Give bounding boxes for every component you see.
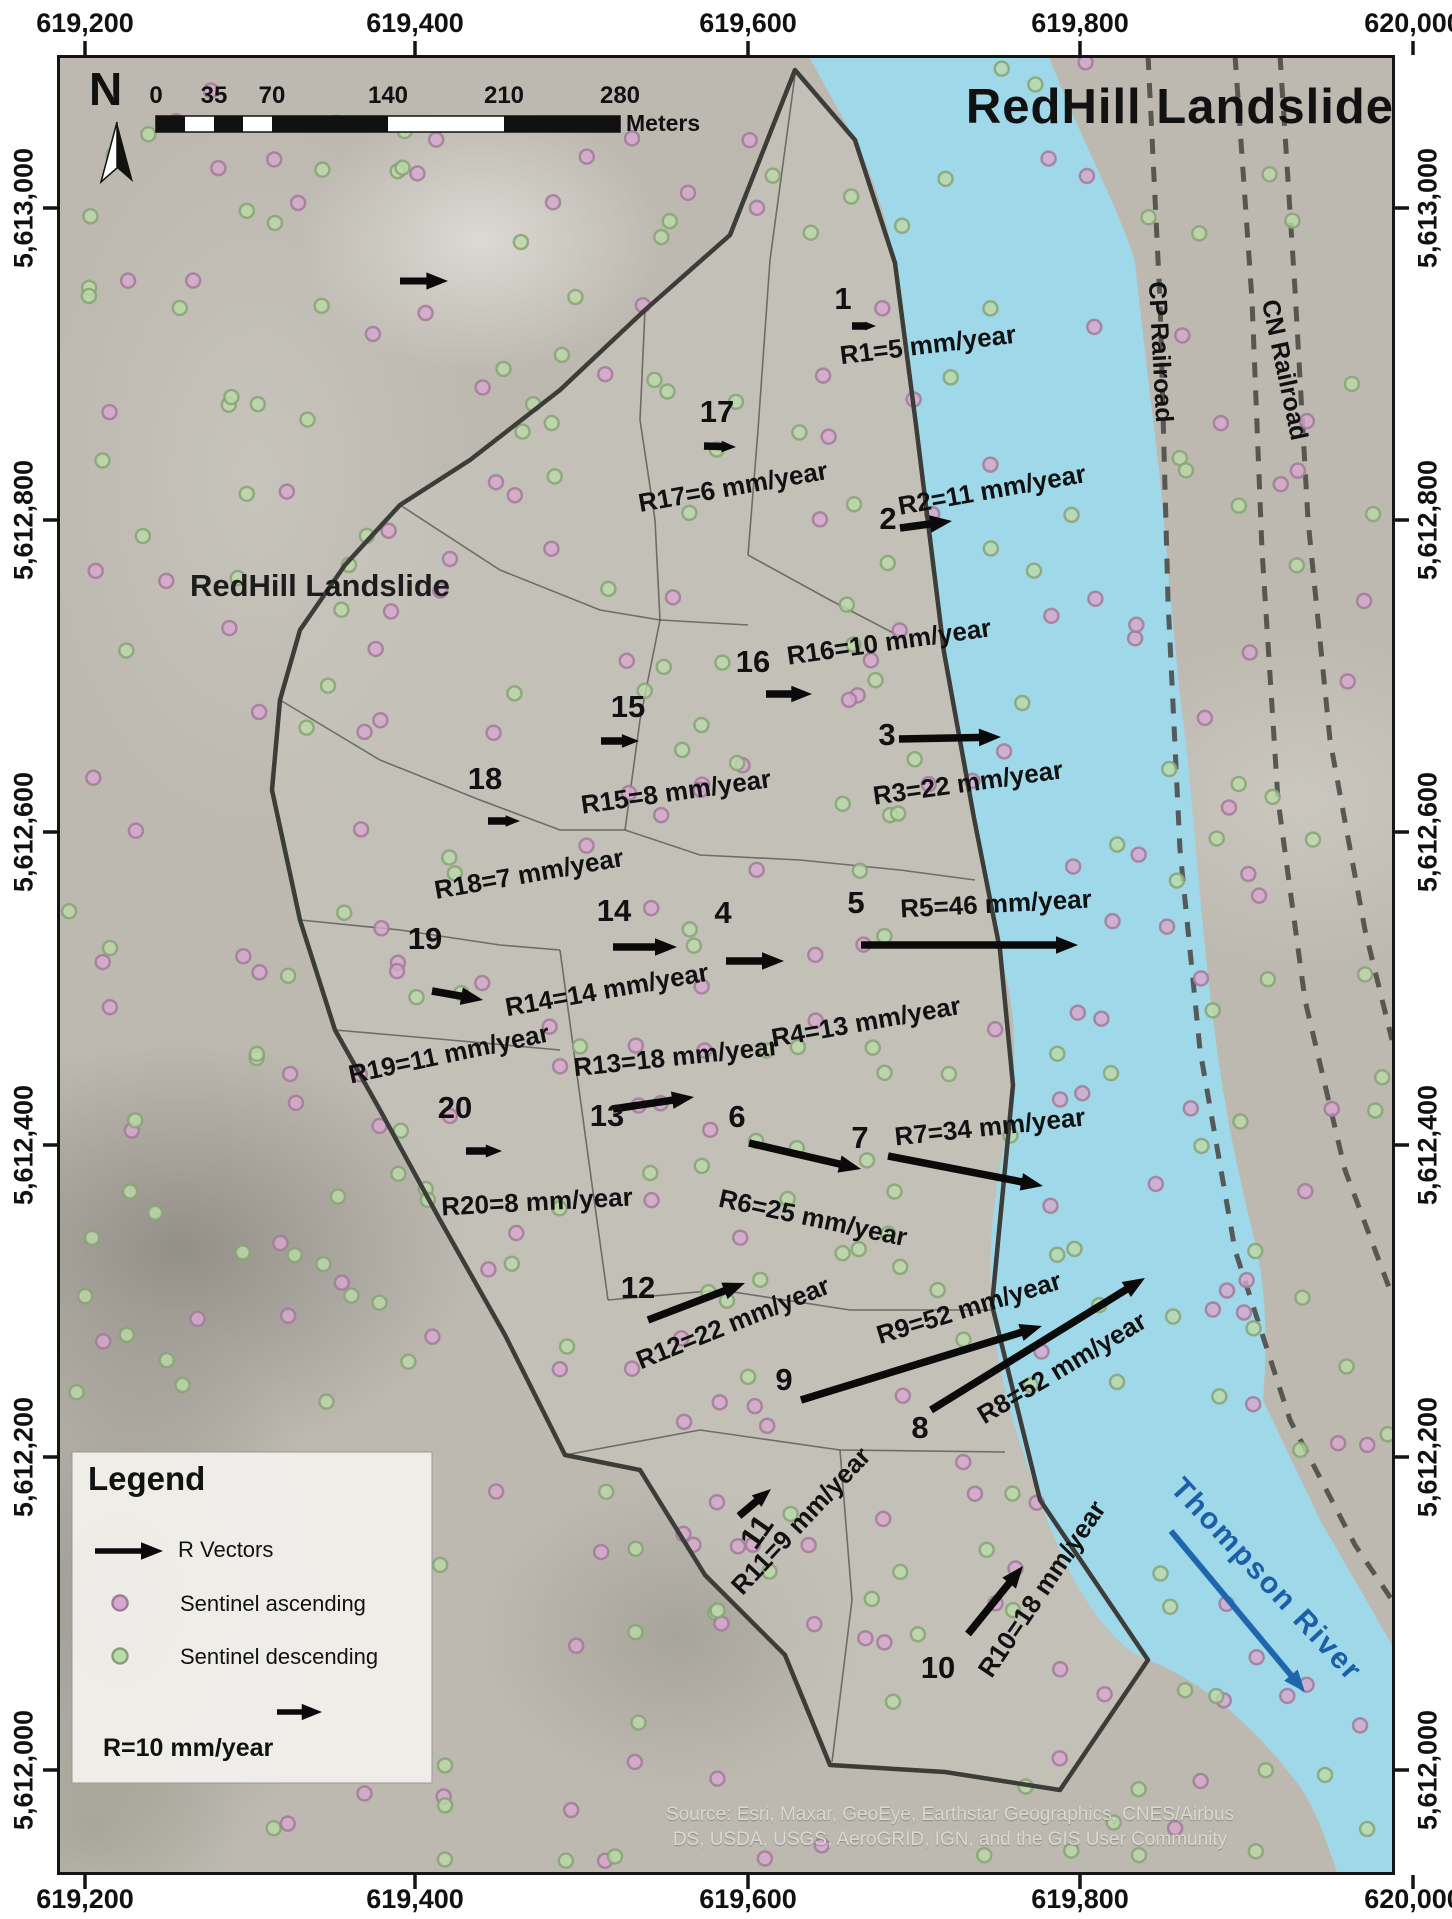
zone-number-9: 9 [775, 1362, 792, 1398]
sentinel-ascending-point [1184, 1101, 1198, 1115]
sentinel-ascending-point [509, 1226, 523, 1240]
sentinel-ascending-point [1160, 920, 1174, 934]
sentinel-ascending-point [644, 901, 658, 915]
sentinel-descending-point [1027, 564, 1041, 578]
y-axis-label-left: 5,612,600 [9, 772, 40, 892]
y-axis-label-right: 5,612,800 [1413, 460, 1444, 580]
zone-number-1: 1 [834, 281, 851, 317]
sentinel-descending-point [753, 1273, 767, 1287]
sentinel-ascending-point [1214, 416, 1228, 430]
sentinel-descending-point [881, 556, 895, 570]
sentinel-ascending-point [875, 301, 889, 315]
sentinel-ascending-point [89, 564, 103, 578]
sentinel-ascending-point [121, 274, 135, 288]
y-axis-label-left: 5,612,400 [9, 1085, 40, 1205]
zone-number-13: 13 [590, 1098, 624, 1134]
sentinel-descending-point [847, 497, 861, 511]
sentinel-descending-point [321, 679, 335, 693]
sentinel-descending-point [683, 922, 697, 936]
sentinel-descending-point [1154, 1566, 1168, 1580]
sentinel-ascending-point [283, 1067, 297, 1081]
x-axis-label-bottom: 619,400 [366, 1884, 464, 1915]
sentinel-ascending-point [620, 654, 634, 668]
sentinel-descending-point [555, 348, 569, 362]
scalebar-tick-label: 210 [484, 82, 524, 110]
sentinel-descending-point [628, 1625, 642, 1639]
sentinel-ascending-point [191, 1312, 205, 1326]
sentinel-descending-point [931, 1283, 945, 1297]
sentinel-ascending-point [159, 574, 173, 588]
sentinel-descending-point [895, 219, 909, 233]
sentinel-descending-point [1358, 967, 1372, 981]
x-axis-label-bottom: 619,600 [699, 1884, 797, 1915]
sentinel-ascending-point [858, 1631, 872, 1645]
sentinel-descending-point [1005, 1487, 1019, 1501]
sentinel-descending-point [1192, 226, 1206, 240]
sentinel-descending-point [675, 743, 689, 757]
sentinel-ascending-point [475, 976, 489, 990]
sentinel-ascending-point [808, 948, 822, 962]
sentinel-descending-point [944, 370, 958, 384]
scalebar-unit: Meters [626, 110, 700, 137]
sentinel-descending-point [957, 1333, 971, 1347]
sentinel-descending-point [836, 797, 850, 811]
sentinel-descending-point [1266, 790, 1280, 804]
sentinel-descending-point [1261, 972, 1275, 986]
sentinel-descending-point [250, 1047, 264, 1061]
sentinel-descending-point [123, 1185, 137, 1199]
map-figure: RedHill Landslide RedHill Landslide N Me… [0, 0, 1452, 1919]
sentinel-ascending-point [896, 1389, 910, 1403]
sentinel-ascending-point [1042, 152, 1056, 166]
sentinel-descending-point [983, 301, 997, 315]
sentinel-ascending-point [358, 725, 372, 739]
sentinel-ascending-point [429, 133, 443, 147]
sentinel-descending-point [1015, 696, 1029, 710]
zone-number-19: 19 [408, 921, 442, 957]
sentinel-ascending-point [703, 1123, 717, 1137]
sentinel-descending-point [804, 226, 818, 240]
sentinel-ascending-point [677, 1415, 691, 1429]
sentinel-descending-point [128, 1113, 142, 1127]
y-axis-label-left: 5,613,000 [9, 148, 40, 268]
sentinel-ascending-point [222, 621, 236, 635]
sentinel-descending-point [741, 1370, 755, 1384]
sentinel-descending-point [632, 1716, 646, 1730]
sentinel-ascending-point [508, 488, 522, 502]
sentinel-ascending-point [546, 195, 560, 209]
sentinel-ascending-point [1237, 1305, 1251, 1319]
x-axis-label-top: 619,600 [699, 8, 797, 39]
sentinel-ascending-point [369, 642, 383, 656]
sentinel-ascending-point [419, 306, 433, 320]
sentinel-ascending-point [96, 1334, 110, 1348]
sentinel-ascending-point [822, 430, 836, 444]
x-axis-label-top: 619,200 [36, 8, 134, 39]
sentinel-descending-point [1195, 1139, 1209, 1153]
sentinel-descending-point [62, 904, 76, 918]
sentinel-ascending-point [489, 475, 503, 489]
north-label: N [89, 62, 122, 116]
scalebar-tick-label: 70 [259, 82, 286, 110]
sentinel-ascending-point [1087, 320, 1101, 334]
sentinel-ascending-point [598, 367, 612, 381]
sentinel-descending-point [1381, 1427, 1395, 1441]
sentinel-descending-point [548, 469, 562, 483]
sentinel-descending-point [1295, 1291, 1309, 1305]
sentinel-descending-point [853, 864, 867, 878]
sentinel-ascending-point [625, 1362, 639, 1376]
sentinel-ascending-point [273, 1236, 287, 1250]
sentinel-ascending-point [710, 1495, 724, 1509]
x-axis-label-bottom: 620,000 [1364, 1884, 1452, 1915]
sentinel-ascending-point [1094, 1012, 1108, 1026]
sentinel-descending-point [1232, 777, 1246, 791]
sentinel-descending-point [136, 529, 150, 543]
legend-descending-symbol [113, 1649, 128, 1664]
sentinel-descending-point [663, 214, 677, 228]
sentinel-descending-point [840, 598, 854, 612]
sentinel-descending-point [545, 416, 559, 430]
sentinel-ascending-point [743, 133, 757, 147]
sentinel-descending-point [1248, 1244, 1262, 1258]
sentinel-descending-point [281, 969, 295, 983]
sentinel-ascending-point [553, 1059, 567, 1073]
sentinel-descending-point [629, 1542, 643, 1556]
sentinel-ascending-point [956, 1455, 970, 1469]
sentinel-ascending-point [1071, 1006, 1085, 1020]
sentinel-descending-point [643, 1166, 657, 1180]
sentinel-descending-point [1262, 167, 1276, 181]
sentinel-descending-point [401, 1355, 415, 1369]
sentinel-ascending-point [628, 1755, 642, 1769]
zone-number-12: 12 [621, 1270, 655, 1306]
sentinel-ascending-point [1053, 1662, 1067, 1676]
sentinel-descending-point [82, 289, 96, 303]
sentinel-ascending-point [968, 1487, 982, 1501]
y-axis-label-right: 5,612,600 [1413, 772, 1444, 892]
sentinel-ascending-point [750, 201, 764, 215]
sentinel-ascending-point [807, 1617, 821, 1631]
scalebar-tick-label: 35 [201, 82, 228, 110]
unlabeled-vector [400, 272, 448, 289]
sentinel-descending-point [1206, 1003, 1220, 1017]
sentinel-descending-point [984, 541, 998, 555]
sentinel-descending-point [559, 1854, 573, 1868]
sentinel-descending-point [1368, 1103, 1382, 1117]
sentinel-descending-point [1163, 1600, 1177, 1614]
sentinel-descending-point [695, 1159, 709, 1173]
sentinel-descending-point [300, 721, 314, 735]
sentinel-ascending-point [384, 604, 398, 618]
sentinel-descending-point [1249, 1844, 1263, 1858]
sentinel-descending-point [1340, 1359, 1354, 1373]
sentinel-ascending-point [1194, 971, 1208, 985]
sentinel-ascending-point [1066, 860, 1080, 874]
sentinel-ascending-point [354, 822, 368, 836]
sentinel-ascending-point [281, 1817, 295, 1831]
sentinel-ascending-point [103, 1000, 117, 1014]
sentinel-descending-point [331, 1190, 345, 1204]
sentinel-descending-point [660, 384, 674, 398]
sentinel-ascending-point [252, 705, 266, 719]
scalebar-tick-label: 280 [600, 82, 640, 110]
sentinel-ascending-point [666, 590, 680, 604]
sentinel-ascending-point [1357, 594, 1371, 608]
sentinel-descending-point [497, 362, 511, 376]
sentinel-descending-point [893, 1260, 907, 1274]
sentinel-descending-point [514, 235, 528, 249]
x-axis-label-top: 620,000 [1364, 8, 1452, 39]
sentinel-descending-point [251, 397, 265, 411]
sentinel-descending-point [516, 425, 530, 439]
sentinel-ascending-point [335, 1276, 349, 1290]
sentinel-descending-point [1209, 1689, 1223, 1703]
sentinel-descending-point [1142, 210, 1156, 224]
sentinel-descending-point [224, 390, 238, 404]
y-axis-label-right: 5,612,200 [1413, 1397, 1444, 1517]
sentinel-descending-point [319, 1395, 333, 1409]
sentinel-ascending-point [425, 1330, 439, 1344]
sentinel-descending-point [176, 1378, 190, 1392]
page-title: RedHill Landslide [966, 79, 1394, 135]
y-axis-label-left: 5,612,800 [9, 460, 40, 580]
sentinel-descending-point [866, 1041, 880, 1055]
sentinel-descending-point [96, 453, 110, 467]
sentinel-ascending-point [1325, 1102, 1339, 1116]
y-axis-label-right: 5,612,400 [1413, 1085, 1444, 1205]
sentinel-descending-point [240, 487, 254, 501]
sentinel-descending-point [70, 1385, 84, 1399]
sentinel-descending-point [560, 1340, 574, 1354]
sentinel-descending-point [1259, 1763, 1273, 1777]
sentinel-ascending-point [758, 1852, 772, 1866]
sentinel-ascending-point [1291, 464, 1305, 478]
sentinel-ascending-point [373, 713, 387, 727]
sentinel-descending-point [568, 290, 582, 304]
sentinel-ascending-point [1098, 1687, 1112, 1701]
sentinel-descending-point [1210, 831, 1224, 845]
sentinel-ascending-point [1088, 592, 1102, 606]
sentinel-ascending-point [1331, 1436, 1345, 1450]
sentinel-ascending-point [842, 693, 856, 707]
sentinel-ascending-point [760, 1419, 774, 1433]
sentinel-descending-point [980, 1543, 994, 1557]
sentinel-descending-point [442, 851, 456, 865]
sentinel-ascending-point [1198, 711, 1212, 725]
sentinel-descending-point [893, 1565, 907, 1579]
sentinel-descending-point [438, 1852, 452, 1866]
sentinel-descending-point [1293, 1443, 1307, 1457]
sentinel-descending-point [865, 1592, 879, 1606]
sentinel-ascending-point [733, 1231, 747, 1245]
sentinel-descending-point [599, 1485, 613, 1499]
zone-number-18: 18 [468, 761, 502, 797]
railroad-track [1235, 55, 1390, 1290]
sentinel-descending-point [1306, 833, 1320, 847]
sentinel-descending-point [836, 1246, 850, 1260]
sentinel-ascending-point [1129, 618, 1143, 632]
sentinel-ascending-point [281, 1309, 295, 1323]
sentinel-descending-point [1318, 1768, 1332, 1782]
sentinel-descending-point [119, 644, 133, 658]
sentinel-ascending-point [580, 150, 594, 164]
sentinel-descending-point [1067, 1242, 1081, 1256]
sentinel-ascending-point [102, 405, 116, 419]
sentinel-descending-point [647, 373, 661, 387]
sentinel-descending-point [301, 413, 315, 427]
sentinel-ascending-point [1222, 800, 1236, 814]
sentinel-ascending-point [487, 726, 501, 740]
sentinel-ascending-point [1149, 1177, 1163, 1191]
sentinel-descending-point [1132, 1782, 1146, 1796]
sentinel-ascending-point [1194, 1774, 1208, 1788]
y-axis-label-right: 5,612,000 [1413, 1710, 1444, 1830]
zone-number-3: 3 [878, 717, 895, 753]
x-axis-label-bottom: 619,800 [1031, 1884, 1129, 1915]
sentinel-ascending-point [1080, 169, 1094, 183]
sentinel-ascending-point [713, 1395, 727, 1409]
sentinel-ascending-point [1132, 848, 1146, 862]
sentinel-ascending-point [1220, 1284, 1234, 1298]
zone-number-8: 8 [911, 1410, 928, 1446]
sentinel-descending-point [888, 1185, 902, 1199]
sentinel-descending-point [687, 939, 701, 953]
sentinel-descending-point [1050, 1248, 1064, 1262]
sentinel-ascending-point [1075, 1086, 1089, 1100]
sentinel-ascending-point [645, 1193, 659, 1207]
sentinel-descending-point [268, 216, 282, 230]
sentinel-descending-point [608, 1849, 622, 1863]
sentinel-descending-point [792, 425, 806, 439]
source-attribution-line1: Source: Esri, Maxar, GeoEye, Earthstar G… [666, 1804, 1234, 1826]
x-axis-label-top: 619,800 [1031, 8, 1129, 39]
zone-number-14: 14 [597, 893, 631, 929]
sentinel-descending-point [438, 1798, 452, 1812]
sentinel-ascending-point [96, 955, 110, 969]
y-axis-label-right: 5,613,000 [1413, 148, 1444, 268]
zone-number-16: 16 [736, 644, 770, 680]
sentinel-descending-point [886, 1695, 900, 1709]
legend-sentinel-descending-label: Sentinel descending [180, 1644, 378, 1670]
sentinel-descending-point [433, 1558, 447, 1572]
y-axis-label-left: 5,612,000 [9, 1710, 40, 1830]
sentinel-descending-point [694, 718, 708, 732]
sentinel-ascending-point [291, 196, 305, 210]
sentinel-ascending-point [1252, 889, 1266, 903]
sentinel-ascending-point [252, 965, 266, 979]
scalebar-tick-label: 140 [368, 82, 408, 110]
sentinel-descending-point [715, 656, 729, 670]
sentinel-ascending-point [710, 1772, 724, 1786]
sentinel-descending-point [78, 1289, 92, 1303]
sentinel-descending-point [1212, 1389, 1226, 1403]
zone-number-2: 2 [879, 501, 896, 537]
sentinel-descending-point [236, 1245, 250, 1259]
sentinel-descending-point [601, 582, 615, 596]
sentinel-ascending-point [236, 949, 250, 963]
sentinel-ascending-point [1250, 1650, 1264, 1664]
sentinel-ascending-point [267, 152, 281, 166]
sentinel-ascending-point [1079, 55, 1093, 69]
sentinel-descending-point [267, 1821, 281, 1835]
sentinel-ascending-point [1353, 1718, 1367, 1732]
sentinel-descending-point [1232, 499, 1246, 513]
sentinel-descending-point [1360, 1822, 1374, 1836]
sentinel-ascending-point [186, 274, 200, 288]
sentinel-ascending-point [564, 1803, 578, 1817]
sentinel-descending-point [344, 1289, 358, 1303]
zone-number-7: 7 [851, 1120, 868, 1156]
sentinel-ascending-point [1246, 1397, 1260, 1411]
sentinel-ascending-point [1206, 1303, 1220, 1317]
legend-title: Legend [88, 1460, 205, 1498]
sentinel-ascending-point [211, 161, 225, 175]
sentinel-descending-point [1345, 377, 1359, 391]
sentinel-descending-point [654, 230, 668, 244]
sentinel-ascending-point [1128, 631, 1142, 645]
sentinel-descending-point [1166, 1310, 1180, 1324]
zone-number-20: 20 [438, 1090, 472, 1126]
zone-number-5: 5 [847, 885, 864, 921]
sentinel-descending-point [1162, 762, 1176, 776]
sentinel-ascending-point [877, 1635, 891, 1649]
sentinel-descending-point [337, 906, 351, 920]
sentinel-ascending-point [374, 921, 388, 935]
sentinel-ascending-point [750, 863, 764, 877]
sentinel-descending-point [1170, 874, 1184, 888]
sentinel-ascending-point [1360, 1438, 1374, 1452]
sentinel-descending-point [240, 204, 254, 218]
sentinel-descending-point [1110, 838, 1124, 852]
sentinel-descending-point [657, 660, 671, 674]
sentinel-descending-point [939, 172, 953, 186]
sentinel-descending-point [315, 299, 329, 313]
sentinel-descending-point [83, 209, 97, 223]
sentinel-ascending-point [997, 744, 1011, 758]
sentinel-ascending-point [1175, 328, 1189, 342]
sentinel-ascending-point [988, 1022, 1002, 1036]
sentinel-ascending-point [129, 824, 143, 838]
sentinel-ascending-point [1044, 1199, 1058, 1213]
sentinel-descending-point [1179, 463, 1193, 477]
source-attribution-line2: DS, USDA, USGS, AeroGRID, IGN, and the G… [673, 1829, 1227, 1851]
sentinel-ascending-point [1274, 477, 1288, 491]
sentinel-ascending-point [481, 1262, 495, 1276]
sentinel-descending-point [1375, 1070, 1389, 1084]
railroad-track [1280, 55, 1392, 1040]
sentinel-descending-point [120, 1328, 134, 1342]
x-axis-label-top: 619,400 [366, 8, 464, 39]
sentinel-descending-point [1285, 214, 1299, 228]
sentinel-ascending-point [1280, 1689, 1294, 1703]
scale-bar [156, 116, 620, 132]
sentinel-ascending-point [410, 166, 424, 180]
y-axis-label-left: 5,612,200 [9, 1397, 40, 1517]
sentinel-descending-point [288, 1248, 302, 1262]
sentinel-descending-point [908, 752, 922, 766]
sentinel-ascending-point [983, 458, 997, 472]
sentinel-ascending-point [1241, 867, 1255, 881]
sentinel-ascending-point [594, 1545, 608, 1559]
zone-number-10: 10 [921, 1650, 955, 1686]
sentinel-ascending-point [443, 552, 457, 566]
legend-sentinel-ascending-label: Sentinel ascending [180, 1591, 366, 1617]
sentinel-ascending-point [553, 1362, 567, 1376]
sentinel-ascending-point [366, 327, 380, 341]
sentinel-ascending-point [289, 1096, 303, 1110]
x-axis-label-bottom: 619,200 [36, 1884, 134, 1915]
